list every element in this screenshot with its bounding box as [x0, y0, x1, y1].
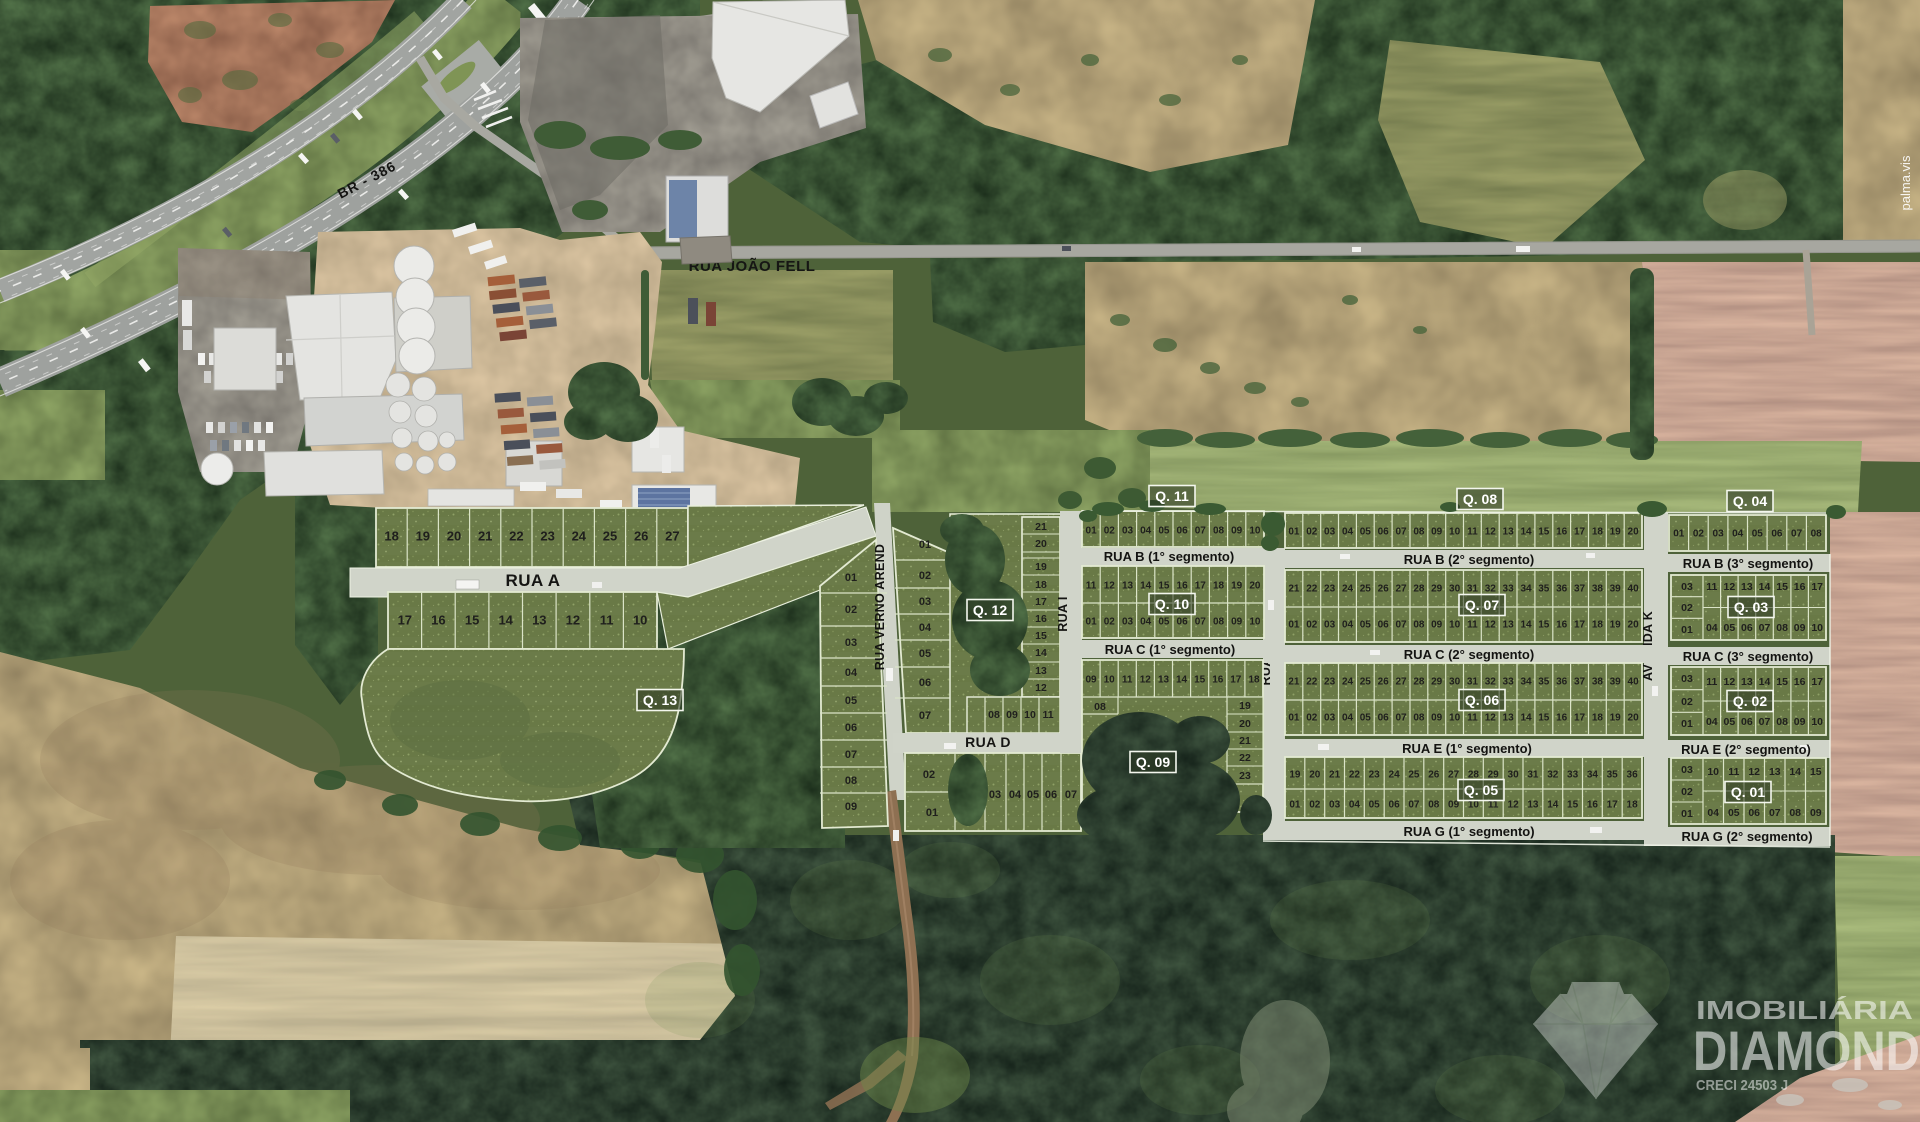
svg-text:24: 24: [1389, 770, 1401, 781]
svg-text:07: 07: [1395, 620, 1407, 631]
svg-text:11: 11: [1467, 713, 1478, 724]
svg-text:14: 14: [1520, 713, 1532, 724]
svg-text:RUA G (2° segmento): RUA G (2° segmento): [1681, 829, 1812, 844]
svg-text:08: 08: [1213, 617, 1225, 628]
svg-text:25: 25: [1408, 770, 1420, 781]
svg-text:05: 05: [919, 648, 931, 660]
svg-text:09: 09: [1794, 716, 1806, 728]
svg-text:03: 03: [1122, 617, 1134, 628]
svg-text:20: 20: [1239, 718, 1251, 730]
svg-text:05: 05: [1360, 713, 1372, 724]
svg-text:31: 31: [1467, 584, 1479, 595]
svg-text:35: 35: [1538, 584, 1550, 595]
svg-text:23: 23: [1324, 584, 1336, 595]
svg-text:01: 01: [845, 572, 857, 584]
svg-text:37: 37: [1574, 584, 1586, 595]
svg-text:27: 27: [665, 529, 679, 544]
svg-text:13: 13: [1035, 665, 1047, 677]
svg-text:30: 30: [1449, 584, 1461, 595]
svg-text:03: 03: [1713, 529, 1725, 540]
svg-text:17: 17: [1811, 676, 1823, 688]
svg-text:Q. 03: Q. 03: [1734, 599, 1768, 615]
svg-text:28: 28: [1413, 584, 1425, 595]
svg-text:15: 15: [1538, 713, 1550, 724]
svg-text:24: 24: [1342, 677, 1354, 688]
svg-text:11: 11: [1728, 766, 1739, 778]
svg-text:20: 20: [1628, 527, 1640, 538]
svg-text:Q. 06: Q. 06: [1465, 692, 1499, 708]
svg-text:15: 15: [1810, 766, 1822, 778]
svg-text:29: 29: [1431, 584, 1443, 595]
svg-text:31: 31: [1467, 677, 1479, 688]
svg-text:33: 33: [1567, 770, 1579, 781]
svg-text:22: 22: [1306, 584, 1318, 595]
svg-text:Q. 13: Q. 13: [643, 692, 677, 708]
svg-text:26: 26: [1378, 677, 1390, 688]
svg-text:06: 06: [1177, 526, 1189, 537]
svg-text:04: 04: [1342, 620, 1354, 631]
svg-text:Q. 02: Q. 02: [1733, 693, 1767, 709]
svg-text:02: 02: [1681, 786, 1693, 798]
svg-text:21: 21: [1288, 584, 1300, 595]
svg-text:13: 13: [1769, 766, 1781, 778]
svg-text:13: 13: [1503, 713, 1515, 724]
svg-text:RUA A: RUA A: [505, 571, 560, 590]
svg-text:26: 26: [634, 529, 648, 544]
svg-text:20: 20: [1249, 581, 1261, 592]
svg-text:40: 40: [1628, 584, 1640, 595]
svg-text:17: 17: [1230, 675, 1242, 686]
svg-text:07: 07: [1408, 800, 1420, 811]
svg-text:09: 09: [1794, 622, 1806, 634]
svg-text:34: 34: [1520, 584, 1532, 595]
svg-text:10: 10: [1249, 526, 1261, 537]
svg-text:01: 01: [1681, 718, 1693, 730]
svg-text:19: 19: [1239, 700, 1251, 712]
svg-text:RUA G (1° segmento): RUA G (1° segmento): [1403, 824, 1534, 839]
svg-text:06: 06: [1378, 527, 1390, 538]
svg-text:RUA C (1° segmento): RUA C (1° segmento): [1105, 642, 1235, 657]
svg-text:08: 08: [1213, 526, 1225, 537]
svg-text:04: 04: [1349, 800, 1361, 811]
svg-text:18: 18: [1592, 713, 1604, 724]
svg-text:27: 27: [1395, 677, 1407, 688]
svg-text:RUA C (3° segmento): RUA C (3° segmento): [1683, 649, 1813, 664]
svg-text:04: 04: [1707, 807, 1719, 819]
svg-text:09: 09: [1431, 620, 1443, 631]
svg-text:05: 05: [1728, 807, 1740, 819]
svg-text:06: 06: [845, 722, 857, 734]
svg-text:16: 16: [1794, 676, 1806, 688]
svg-text:05: 05: [1158, 526, 1170, 537]
svg-text:12: 12: [1485, 620, 1497, 631]
svg-text:CRECI 24503 J: CRECI 24503 J: [1696, 1077, 1788, 1094]
svg-text:05: 05: [845, 695, 857, 707]
svg-text:07: 07: [1065, 789, 1077, 801]
svg-text:28: 28: [1413, 677, 1425, 688]
svg-text:12: 12: [1035, 682, 1047, 694]
svg-text:10: 10: [1449, 713, 1461, 724]
svg-text:14: 14: [1789, 766, 1801, 778]
svg-text:RUA C (2° segmento): RUA C (2° segmento): [1404, 647, 1534, 662]
svg-text:04: 04: [1706, 622, 1718, 634]
svg-text:06: 06: [1378, 713, 1390, 724]
svg-text:22: 22: [1349, 770, 1361, 781]
svg-text:19: 19: [1610, 620, 1622, 631]
svg-text:12: 12: [1724, 581, 1736, 593]
svg-text:09: 09: [1431, 713, 1443, 724]
svg-text:RUA I: RUA I: [1056, 596, 1070, 632]
svg-text:08: 08: [988, 709, 1000, 721]
svg-text:12: 12: [566, 613, 580, 628]
svg-text:RUA B (3° segmento): RUA B (3° segmento): [1683, 556, 1813, 571]
svg-text:13: 13: [1503, 620, 1515, 631]
svg-text:17: 17: [1195, 581, 1207, 592]
svg-text:04: 04: [845, 667, 858, 679]
svg-text:19: 19: [1035, 561, 1047, 573]
svg-text:18: 18: [1592, 527, 1604, 538]
svg-text:13: 13: [1122, 581, 1134, 592]
svg-text:32: 32: [1547, 770, 1559, 781]
svg-text:08: 08: [1789, 807, 1801, 819]
svg-text:08: 08: [1094, 701, 1106, 713]
svg-text:11: 11: [1467, 527, 1478, 538]
svg-text:07: 07: [1759, 716, 1771, 728]
svg-text:03: 03: [1329, 800, 1341, 811]
svg-text:RUA E (1° segmento): RUA E (1° segmento): [1402, 741, 1532, 756]
svg-text:RUA B (2° segmento): RUA B (2° segmento): [1404, 552, 1534, 567]
svg-text:10: 10: [1449, 620, 1461, 631]
svg-text:Q. 05: Q. 05: [1464, 782, 1498, 798]
svg-text:02: 02: [1681, 602, 1693, 614]
svg-text:13: 13: [1503, 527, 1515, 538]
svg-text:15: 15: [1035, 630, 1047, 642]
svg-text:08: 08: [1776, 622, 1788, 634]
svg-text:05: 05: [1360, 527, 1372, 538]
svg-text:02: 02: [1306, 527, 1318, 538]
svg-text:03: 03: [919, 596, 931, 608]
svg-text:36: 36: [1556, 584, 1568, 595]
svg-text:06: 06: [1177, 617, 1189, 628]
svg-text:09: 09: [1810, 807, 1822, 819]
svg-text:19: 19: [1289, 770, 1301, 781]
svg-text:11: 11: [1122, 675, 1133, 686]
svg-text:14: 14: [1520, 527, 1532, 538]
svg-text:26: 26: [1428, 770, 1440, 781]
svg-text:05: 05: [1724, 716, 1736, 728]
svg-text:01: 01: [919, 539, 931, 551]
svg-text:37: 37: [1574, 677, 1586, 688]
svg-text:01: 01: [926, 807, 938, 819]
svg-text:33: 33: [1503, 677, 1515, 688]
svg-text:13: 13: [1741, 581, 1753, 593]
svg-text:21: 21: [1035, 521, 1047, 533]
svg-text:38: 38: [1592, 584, 1604, 595]
svg-text:03: 03: [845, 637, 857, 649]
svg-text:10: 10: [1707, 766, 1719, 778]
svg-text:23: 23: [1239, 770, 1251, 782]
svg-text:36: 36: [1556, 677, 1568, 688]
svg-text:17: 17: [1574, 620, 1586, 631]
svg-text:31: 31: [1527, 770, 1539, 781]
svg-text:13: 13: [1527, 800, 1539, 811]
svg-text:15: 15: [1538, 527, 1550, 538]
svg-text:Q. 01: Q. 01: [1731, 784, 1765, 800]
svg-text:04: 04: [1342, 527, 1354, 538]
svg-text:14: 14: [1176, 675, 1188, 686]
svg-text:27: 27: [1395, 584, 1407, 595]
svg-text:10: 10: [1811, 622, 1823, 634]
svg-text:Q. 08: Q. 08: [1463, 491, 1497, 507]
svg-text:Q. 10: Q. 10: [1155, 596, 1189, 612]
svg-text:14: 14: [1035, 647, 1047, 659]
svg-text:03: 03: [1681, 581, 1693, 593]
svg-text:01: 01: [1086, 526, 1098, 537]
svg-text:02: 02: [845, 604, 857, 616]
svg-text:01: 01: [1288, 527, 1300, 538]
svg-text:RUA B (1° segmento): RUA B (1° segmento): [1104, 549, 1234, 564]
svg-text:14: 14: [1140, 581, 1152, 592]
svg-text:02: 02: [1681, 696, 1693, 708]
svg-text:palma.vis: palma.vis: [1898, 155, 1913, 210]
svg-text:07: 07: [1769, 807, 1781, 819]
svg-text:01: 01: [1673, 529, 1685, 540]
svg-text:18: 18: [1213, 581, 1225, 592]
svg-text:02: 02: [1104, 617, 1116, 628]
svg-text:30: 30: [1508, 770, 1520, 781]
svg-text:16: 16: [1177, 581, 1189, 592]
svg-text:09: 09: [1431, 527, 1443, 538]
svg-text:12: 12: [1485, 713, 1497, 724]
svg-text:12: 12: [1724, 676, 1736, 688]
svg-text:Q. 12: Q. 12: [973, 602, 1007, 618]
svg-text:10: 10: [1104, 675, 1116, 686]
svg-text:40: 40: [1628, 677, 1640, 688]
svg-text:Q. 07: Q. 07: [1465, 597, 1499, 613]
svg-text:06: 06: [1741, 622, 1753, 634]
svg-text:16: 16: [1556, 527, 1568, 538]
svg-text:18: 18: [1627, 800, 1639, 811]
svg-text:39: 39: [1610, 584, 1622, 595]
svg-text:18: 18: [1035, 579, 1047, 591]
svg-text:22: 22: [509, 529, 523, 544]
svg-text:07: 07: [1759, 622, 1771, 634]
svg-text:09: 09: [1085, 675, 1097, 686]
svg-text:04: 04: [1140, 617, 1152, 628]
svg-text:16: 16: [1035, 613, 1047, 625]
svg-text:02: 02: [1104, 526, 1116, 537]
svg-text:08: 08: [1811, 529, 1823, 540]
svg-text:18: 18: [1248, 675, 1260, 686]
svg-text:07: 07: [1791, 529, 1803, 540]
svg-text:34: 34: [1520, 677, 1532, 688]
svg-text:13: 13: [532, 613, 546, 628]
svg-text:11: 11: [1467, 620, 1478, 631]
svg-text:05: 05: [1360, 620, 1372, 631]
svg-text:19: 19: [1610, 527, 1622, 538]
svg-text:RUA D: RUA D: [965, 734, 1011, 750]
svg-text:04: 04: [1140, 526, 1152, 537]
svg-text:06: 06: [1378, 620, 1390, 631]
svg-text:38: 38: [1592, 677, 1604, 688]
svg-text:01: 01: [1289, 800, 1301, 811]
svg-text:15: 15: [1567, 800, 1579, 811]
svg-text:34: 34: [1587, 770, 1599, 781]
svg-text:15: 15: [1194, 675, 1206, 686]
svg-text:01: 01: [1288, 713, 1300, 724]
svg-text:08: 08: [1413, 527, 1425, 538]
svg-text:09: 09: [845, 801, 857, 813]
svg-text:13: 13: [1158, 675, 1170, 686]
svg-text:26: 26: [1378, 584, 1390, 595]
svg-text:24: 24: [572, 529, 587, 544]
svg-text:07: 07: [845, 749, 857, 761]
svg-text:15: 15: [1776, 676, 1788, 688]
svg-text:10: 10: [1249, 617, 1261, 628]
svg-text:23: 23: [540, 529, 554, 544]
svg-text:12: 12: [1508, 800, 1520, 811]
svg-text:19: 19: [1231, 581, 1243, 592]
svg-text:05: 05: [1158, 617, 1170, 628]
svg-text:06: 06: [1741, 716, 1753, 728]
svg-text:20: 20: [447, 529, 461, 544]
svg-text:06: 06: [1389, 800, 1401, 811]
svg-text:07: 07: [1395, 713, 1407, 724]
svg-text:10: 10: [1811, 716, 1823, 728]
svg-text:15: 15: [465, 613, 479, 628]
svg-text:03: 03: [1324, 527, 1336, 538]
svg-text:20: 20: [1628, 620, 1640, 631]
svg-text:16: 16: [1556, 713, 1568, 724]
svg-text:06: 06: [1771, 529, 1783, 540]
svg-text:05: 05: [1724, 622, 1736, 634]
svg-text:01: 01: [1681, 808, 1693, 820]
svg-text:02: 02: [919, 570, 931, 582]
svg-text:16: 16: [1794, 581, 1806, 593]
svg-text:04: 04: [1706, 716, 1718, 728]
svg-text:20: 20: [1628, 713, 1640, 724]
svg-text:25: 25: [1360, 677, 1372, 688]
svg-text:35: 35: [1538, 677, 1550, 688]
svg-text:10: 10: [1449, 527, 1461, 538]
svg-text:Q. 09: Q. 09: [1136, 754, 1170, 770]
svg-text:16: 16: [1556, 620, 1568, 631]
svg-text:22: 22: [1306, 677, 1318, 688]
svg-text:19: 19: [416, 529, 430, 544]
svg-text:11: 11: [1706, 581, 1717, 593]
svg-text:09: 09: [1231, 526, 1243, 537]
svg-text:11: 11: [1706, 676, 1717, 688]
svg-text:10: 10: [633, 613, 647, 628]
svg-text:19: 19: [1610, 713, 1622, 724]
svg-text:08: 08: [1776, 716, 1788, 728]
svg-text:21: 21: [1239, 735, 1251, 747]
svg-text:14: 14: [1759, 676, 1771, 688]
svg-text:12: 12: [1485, 527, 1497, 538]
svg-text:25: 25: [603, 529, 617, 544]
svg-text:18: 18: [384, 529, 398, 544]
svg-text:11: 11: [1086, 581, 1097, 592]
svg-text:05: 05: [1752, 529, 1764, 540]
svg-text:03: 03: [1324, 713, 1336, 724]
svg-text:15: 15: [1158, 581, 1170, 592]
svg-text:17: 17: [398, 613, 412, 628]
svg-text:08: 08: [1428, 800, 1440, 811]
svg-text:15: 15: [1538, 620, 1550, 631]
svg-text:01: 01: [1288, 620, 1300, 631]
svg-text:03: 03: [1122, 526, 1134, 537]
svg-text:14: 14: [498, 613, 513, 628]
svg-text:32: 32: [1485, 677, 1497, 688]
svg-text:20: 20: [1035, 538, 1047, 550]
svg-text:04: 04: [1009, 789, 1022, 801]
svg-text:12: 12: [1140, 675, 1152, 686]
svg-text:02: 02: [1306, 713, 1318, 724]
svg-text:06: 06: [919, 677, 931, 689]
svg-text:03: 03: [1681, 673, 1693, 685]
svg-text:07: 07: [1195, 526, 1207, 537]
svg-text:10: 10: [1024, 709, 1036, 721]
svg-text:05: 05: [1369, 800, 1381, 811]
svg-text:36: 36: [1627, 770, 1639, 781]
svg-text:24: 24: [1342, 584, 1354, 595]
svg-text:14: 14: [1520, 620, 1532, 631]
svg-text:05: 05: [1027, 789, 1039, 801]
svg-text:20: 20: [1309, 770, 1321, 781]
svg-text:08: 08: [1413, 620, 1425, 631]
svg-text:03: 03: [1681, 764, 1693, 776]
svg-text:11: 11: [600, 613, 614, 628]
svg-text:17: 17: [1574, 527, 1586, 538]
svg-text:17: 17: [1607, 800, 1619, 811]
svg-text:30: 30: [1449, 677, 1461, 688]
svg-text:14: 14: [1759, 581, 1771, 593]
svg-text:16: 16: [1212, 675, 1224, 686]
svg-text:17: 17: [1574, 713, 1586, 724]
svg-text:21: 21: [1329, 770, 1341, 781]
svg-text:17: 17: [1035, 596, 1047, 608]
svg-text:21: 21: [478, 529, 492, 544]
svg-text:02: 02: [1306, 620, 1318, 631]
svg-text:Q. 11: Q. 11: [1155, 488, 1189, 504]
svg-text:12: 12: [1104, 581, 1116, 592]
svg-text:16: 16: [1587, 800, 1599, 811]
svg-text:01: 01: [1681, 624, 1693, 636]
svg-text:02: 02: [1309, 800, 1321, 811]
svg-text:33: 33: [1503, 584, 1515, 595]
svg-text:18: 18: [1592, 620, 1604, 631]
svg-text:12: 12: [1748, 766, 1760, 778]
svg-text:09: 09: [1231, 617, 1243, 628]
svg-text:23: 23: [1369, 770, 1381, 781]
svg-text:32: 32: [1485, 584, 1497, 595]
svg-text:07: 07: [1195, 617, 1207, 628]
svg-text:07: 07: [1395, 527, 1407, 538]
svg-text:06: 06: [1748, 807, 1760, 819]
svg-text:03: 03: [1324, 620, 1336, 631]
svg-text:15: 15: [1776, 581, 1788, 593]
svg-text:08: 08: [1413, 713, 1425, 724]
svg-text:09: 09: [1006, 709, 1018, 721]
svg-text:14: 14: [1547, 800, 1559, 811]
svg-text:Q. 04: Q. 04: [1733, 493, 1767, 509]
svg-text:23: 23: [1324, 677, 1336, 688]
svg-text:13: 13: [1741, 676, 1753, 688]
svg-text:07: 07: [919, 710, 931, 722]
svg-text:02: 02: [923, 769, 935, 781]
svg-text:16: 16: [431, 613, 445, 628]
svg-text:06: 06: [1045, 789, 1057, 801]
